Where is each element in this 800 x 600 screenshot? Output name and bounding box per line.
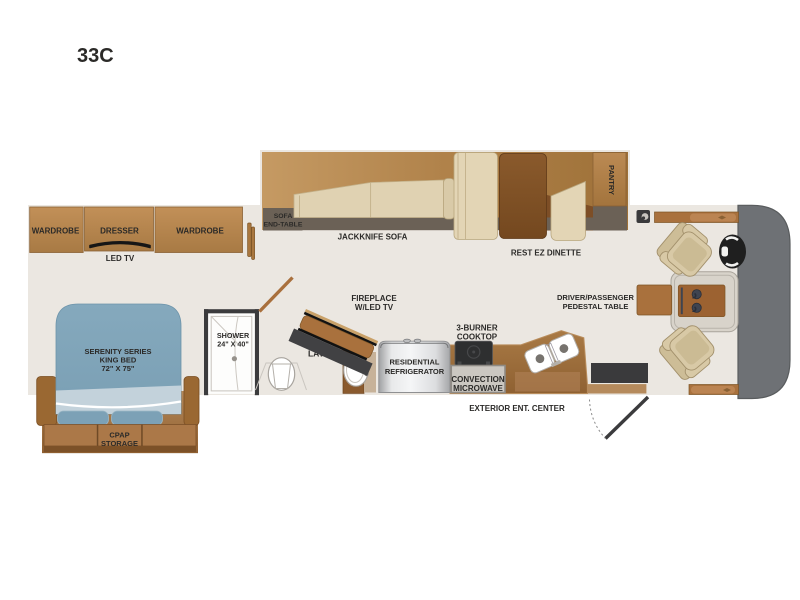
svg-text:CONVECTION: CONVECTION	[451, 375, 505, 384]
svg-text:REFRIGERATOR: REFRIGERATOR	[385, 367, 445, 376]
svg-text:RESIDENTIAL: RESIDENTIAL	[389, 358, 439, 367]
svg-text:WARDROBE: WARDROBE	[176, 227, 224, 236]
svg-text:33C: 33C	[77, 45, 114, 67]
svg-text:24" X 40": 24" X 40"	[217, 340, 249, 349]
svg-text:MICROWAVE: MICROWAVE	[453, 384, 503, 393]
svg-text:LED TV: LED TV	[106, 254, 135, 263]
svg-text:DRIVER/PASSENGER: DRIVER/PASSENGER	[557, 293, 635, 302]
svg-text:END-TABLE: END-TABLE	[264, 221, 303, 228]
svg-text:EXTERIOR ENT. CENTER: EXTERIOR ENT. CENTER	[469, 404, 565, 413]
svg-text:W/LED TV: W/LED TV	[355, 303, 394, 312]
svg-text:PEDESTAL TABLE: PEDESTAL TABLE	[563, 302, 629, 311]
svg-text:FIREPLACE: FIREPLACE	[351, 294, 397, 303]
svg-text:DRESSER: DRESSER	[100, 227, 139, 236]
svg-text:JACKKNIFE SOFA: JACKKNIFE SOFA	[338, 233, 408, 242]
svg-text:COOKTOP: COOKTOP	[457, 333, 498, 342]
svg-text:PANTRY: PANTRY	[607, 165, 616, 195]
svg-text:SOFA: SOFA	[274, 213, 293, 220]
svg-text:72" X 75": 72" X 75"	[102, 364, 135, 373]
svg-text:WARDROBE: WARDROBE	[32, 227, 80, 236]
svg-text:REST EZ DINETTE: REST EZ DINETTE	[511, 249, 582, 258]
svg-text:STORAGE: STORAGE	[101, 439, 138, 448]
svg-text:3-BURNER: 3-BURNER	[456, 324, 498, 333]
